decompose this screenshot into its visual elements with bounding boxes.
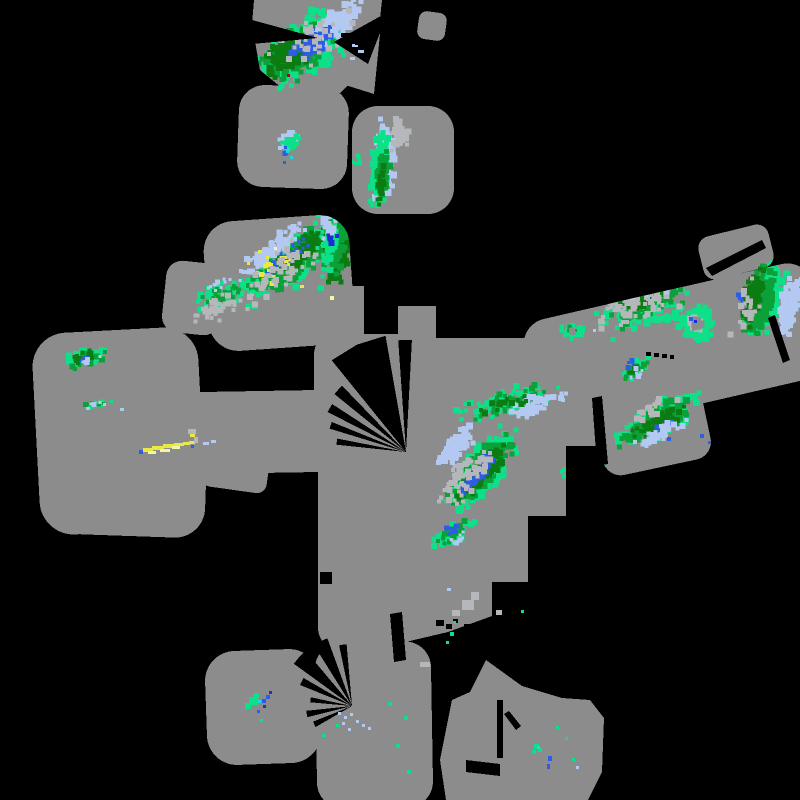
radar-composite-map: [0, 0, 800, 800]
radar-viewport: [0, 0, 800, 800]
